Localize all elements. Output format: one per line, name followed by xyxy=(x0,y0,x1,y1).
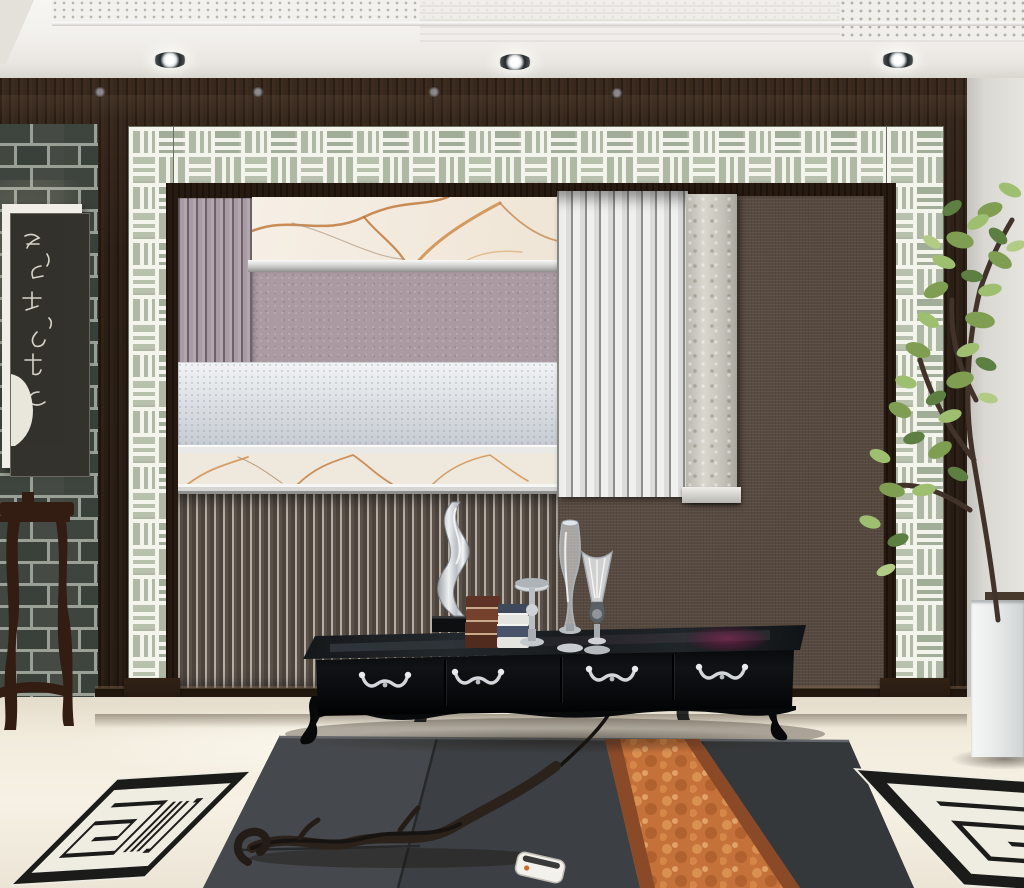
recessed-spotlight xyxy=(881,52,915,68)
light-reflection xyxy=(251,87,265,97)
light-reflection xyxy=(93,87,107,97)
calligraphy-artwork xyxy=(2,204,82,468)
artwork-ink-rubbing xyxy=(10,213,90,477)
marble-header-trim xyxy=(248,260,562,272)
panel-travertine xyxy=(686,194,737,503)
light-reflection xyxy=(427,87,441,97)
panel-mauve-stucco xyxy=(252,269,558,364)
panel-marble-ledge xyxy=(178,445,558,494)
panel-white-striped xyxy=(557,191,688,497)
wood-sheen xyxy=(0,95,967,121)
light-reflection xyxy=(610,88,624,98)
leaves xyxy=(858,179,1024,578)
glass-vase-tall xyxy=(557,520,583,653)
console-reflection xyxy=(688,626,768,652)
glass-vase-goblet xyxy=(582,552,612,655)
ceiling-tray-edge xyxy=(52,22,1024,26)
ceiling-perforated-panel-right xyxy=(840,0,1024,40)
potted-plant xyxy=(840,150,1024,630)
panel-silver-band xyxy=(178,362,558,447)
drawer-handles xyxy=(315,658,795,698)
artwork-mat xyxy=(2,204,82,468)
recessed-spotlight xyxy=(498,54,532,70)
book-stack-brown xyxy=(465,596,501,648)
travertine-cap xyxy=(682,487,741,503)
living-room-photo xyxy=(0,0,1024,888)
recessed-spotlight xyxy=(153,52,187,68)
lattice-border-top xyxy=(128,126,944,188)
tabletop-decor xyxy=(410,498,620,660)
panel-fluted-mauve xyxy=(178,198,254,364)
